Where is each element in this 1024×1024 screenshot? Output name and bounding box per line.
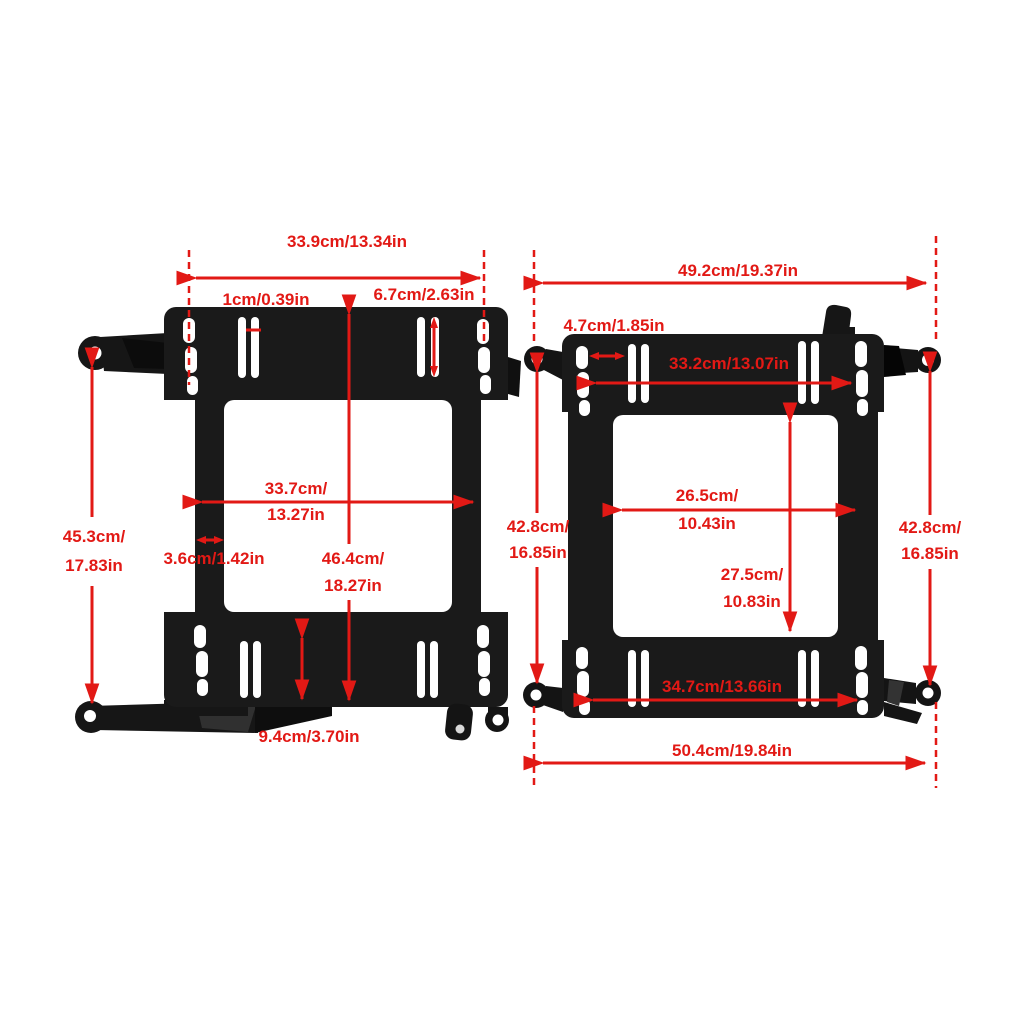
dimension-diagram: 33.9cm/13.34in 1cm/0.39in 6.7cm/2.63in 3… [0, 0, 1024, 1024]
dim-label-left-overall-height: 46.4cm/ 18.27in [322, 545, 384, 599]
dim-label-line: 26.5cm/ [676, 482, 738, 510]
dim-label-line: 42.8cm/ [899, 515, 961, 541]
dim-label-right-bottom-slot-span: 34.7cm/13.66in [662, 677, 782, 697]
dim-label-line: 46.4cm/ [322, 545, 384, 572]
dim-label-line: 13.27in [265, 502, 327, 528]
dim-label-right-top-slot-span: 33.2cm/13.07in [669, 354, 789, 374]
dim-label-right-left-height: 42.8cm/ 16.85in [507, 514, 569, 566]
dim-label-left-side-height: 45.3cm/ 17.83in [63, 522, 125, 580]
dim-label-line: 42.8cm/ [507, 514, 569, 540]
dim-label-line: 33.7cm/ [265, 476, 327, 502]
dim-label-right-right-height: 42.8cm/ 16.85in [899, 515, 961, 567]
dim-label-line: 45.3cm/ [63, 522, 125, 551]
dim-label-left-slot-width: 1cm/0.39in [223, 290, 310, 310]
dim-label-line: 16.85in [507, 540, 569, 566]
dim-label-line: 27.5cm/ [721, 561, 783, 588]
dim-label-left-top-width: 33.9cm/13.34in [287, 232, 407, 252]
dim-label-line: 10.43in [676, 510, 738, 538]
dim-label-line: 17.83in [63, 551, 125, 580]
dim-label-right-slot-spacing: 4.7cm/1.85in [563, 316, 664, 336]
dim-label-right-top-width: 49.2cm/19.37in [678, 261, 798, 281]
dim-label-line: 16.85in [899, 541, 961, 567]
dim-label-left-rail-width: 3.6cm/1.42in [163, 549, 264, 569]
dim-label-line: 10.83in [721, 588, 783, 615]
dim-label-line: 18.27in [322, 572, 384, 599]
dim-label-right-bottom-width: 50.4cm/19.84in [672, 741, 792, 761]
dim-label-right-inner-width: 26.5cm/ 10.43in [676, 482, 738, 538]
bracket-diagram-graphics [0, 0, 1024, 1024]
dim-label-left-inner-width: 33.7cm/ 13.27in [265, 476, 327, 528]
dim-label-left-slot-height: 6.7cm/2.63in [373, 285, 474, 305]
dim-label-right-inner-height: 27.5cm/ 10.83in [721, 561, 783, 615]
dim-label-left-flange-height: 9.4cm/3.70in [258, 727, 359, 747]
